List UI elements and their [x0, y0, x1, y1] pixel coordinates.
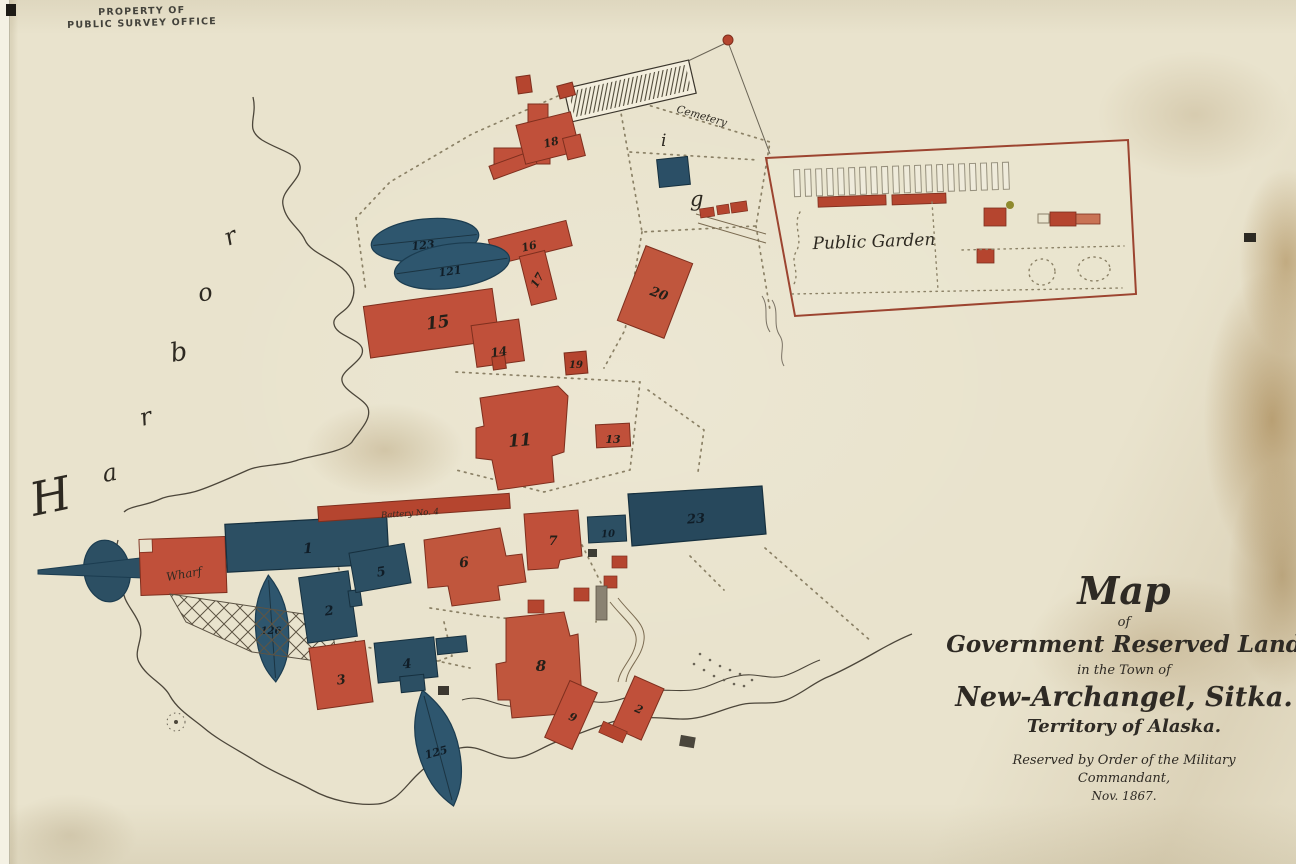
dark-outbuilding — [588, 549, 597, 557]
building-19-number: 19 — [569, 360, 583, 371]
building-13-number: 13 — [605, 433, 621, 446]
plot-letter-i: i — [661, 131, 666, 151]
harbor-letter-H: H — [24, 465, 76, 527]
building-6-number: 6 — [458, 555, 470, 572]
building-1-number: 1 — [303, 541, 314, 557]
title-new-archangel: New-Archangel, Sitka. — [954, 682, 1293, 713]
harbor-letter-r1: r — [137, 402, 156, 432]
title-territory: Territory of Alaska. — [1027, 716, 1221, 737]
title-map: Map — [1075, 568, 1171, 613]
building-11-number: 11 — [507, 430, 532, 452]
cemetery-label: Cemetery — [675, 103, 729, 129]
property-stamp: PROPERTY OF PUBLIC SURVEY OFFICE — [67, 4, 217, 31]
title-block: Map of Government Reserved Land in the T… — [946, 568, 1296, 803]
wharf-block — [139, 537, 227, 596]
sitka-map-drawing: PROPERTY OF PUBLIC SURVEY OFFICE — [0, 0, 1296, 864]
title-in-the-town-of: in the Town of — [1077, 663, 1173, 678]
title-date: Nov. 1867. — [1090, 789, 1156, 803]
building-15-number: 15 — [425, 311, 451, 334]
building-15-14 — [363, 285, 525, 386]
harbor-letter-r2: r — [220, 221, 243, 252]
title-reserved-by: Reserved by Order of the Military — [1011, 753, 1236, 768]
harbor-label: H a r b o r — [24, 221, 242, 527]
building-2-number: 2 — [323, 603, 335, 619]
plot-letter-g: g — [690, 187, 703, 211]
rocks-and-islets — [167, 653, 753, 749]
cemetery-area: Cemetery i g — [564, 60, 748, 218]
stamp-line2: PUBLIC SURVEY OFFICE — [67, 16, 217, 31]
building-14-number: 14 — [490, 344, 508, 360]
map-paper: PROPERTY OF PUBLIC SURVEY OFFICE — [0, 0, 1296, 864]
public-garden: Public Garden — [762, 140, 1136, 366]
title-commandant: Commandant, — [1078, 771, 1170, 786]
harbor-letter-o: o — [195, 277, 216, 308]
gray-strip-building — [596, 586, 607, 620]
small-red-row — [700, 201, 748, 218]
stamp-line1: PROPERTY OF — [98, 5, 185, 18]
blue-building-cemetery — [657, 156, 691, 187]
garden-stream — [762, 296, 784, 366]
building-23-number: 23 — [685, 511, 705, 527]
building-4-number: 4 — [402, 657, 413, 673]
building-8-number: 8 — [536, 657, 547, 675]
harbor-letter-a: a — [100, 458, 119, 488]
title-of: of — [1118, 615, 1133, 630]
building-7-number: 7 — [548, 534, 557, 549]
title-govt-reserved-land: Government Reserved Land — [946, 631, 1296, 658]
blockhouse-post-marker — [723, 35, 733, 45]
harbor-letter-b: b — [168, 336, 190, 368]
garden-yellow-marker — [1006, 201, 1014, 209]
building-10-number: 10 — [601, 529, 616, 541]
building-6 — [424, 528, 526, 606]
